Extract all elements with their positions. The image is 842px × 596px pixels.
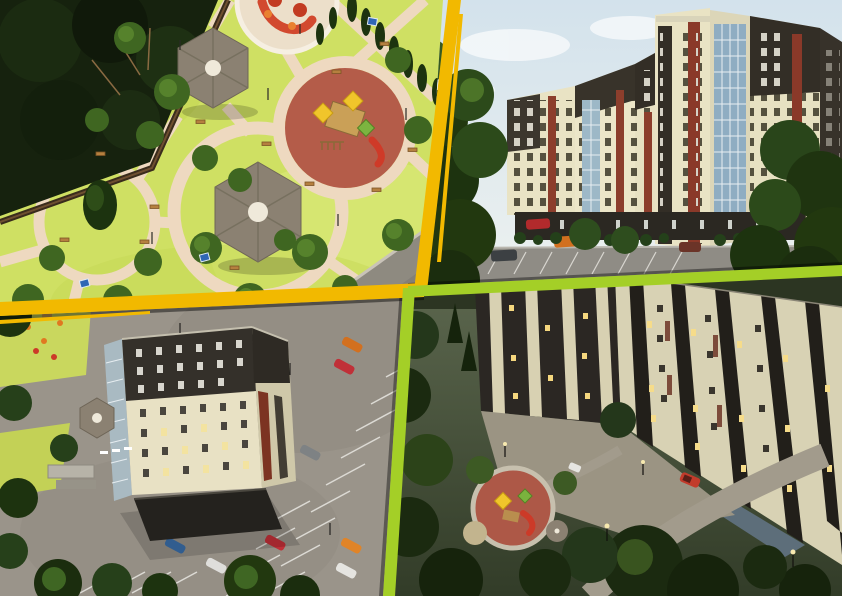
apartment-tower [104,327,300,560]
photo-tower-parking-aerial [0,283,420,596]
photo-building-street [420,0,842,298]
kiosk [48,465,94,478]
building-left-wing [475,275,621,425]
street-scene [420,0,842,298]
park-scene [0,0,460,320]
parking-scene [0,283,420,596]
photo-park-aerial [0,0,460,320]
courtyard-scene [385,265,842,596]
photo-courtyard-dusk-aerial [385,265,842,596]
collage-root [0,0,842,596]
playground [285,68,405,188]
